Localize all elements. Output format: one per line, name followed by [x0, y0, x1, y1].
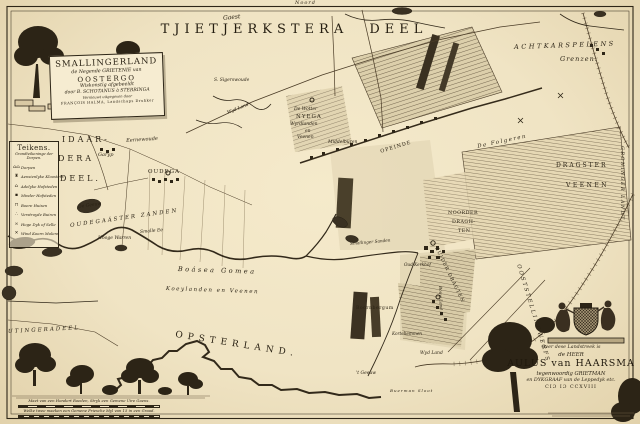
label-boornbergum: Boornbergum	[356, 307, 394, 312]
legend-glyph: ∴	[12, 212, 21, 217]
legend-glyph: ✕	[12, 231, 21, 236]
dedication-date: CIƆ IƆ CCXVIII	[506, 385, 636, 391]
legend-box: Teikens. Grondteikeninge der Dorpen. ⌂⌂D…	[9, 141, 59, 248]
legend-glyph: ≍	[12, 222, 21, 227]
coat-of-arms	[574, 303, 598, 335]
legend-glyph: ▪	[12, 193, 21, 198]
label-dragster: DRAGSTER	[556, 163, 607, 169]
north-label: Noord	[295, 0, 316, 6]
title-cartouche: SMALLINGERLAND de Negende GRIETENIE van …	[49, 52, 165, 120]
label-grenzen: Grenzen.	[560, 56, 598, 63]
label-dera: DERA	[58, 155, 94, 163]
windmill-icon	[518, 118, 523, 123]
label-de-wotter: De Wotter	[294, 108, 317, 113]
pedestal	[548, 338, 624, 343]
trees-bottom-left	[12, 343, 210, 398]
dedication-line5: en DYKGRAAF van de Leppedyk etc.	[506, 378, 636, 384]
legend-label: Hoge Dyk of Selle	[21, 222, 56, 227]
scale-text-1: Maet van een Hondert Roeden, Stryk een G…	[14, 399, 164, 404]
scale-bar-2	[18, 415, 160, 418]
legend-item: ✕Wind Koorn Molens	[12, 229, 56, 239]
label-noorder: NOORDER	[448, 212, 478, 217]
legend-label: Verstroyde Buiren	[21, 212, 56, 217]
legend-label: Minder Hofsteden	[21, 193, 56, 198]
label-kortehemmen: Kortehemmen	[392, 332, 422, 336]
dedication-line2: de HEER	[506, 352, 636, 358]
legend-glyph: ⌂	[12, 184, 21, 189]
legend-label: Wind Koorn Molens	[21, 231, 59, 236]
legend-item: ∴Verstroyde Buiren	[12, 210, 56, 220]
legend-glyph: ⌂⌂	[12, 165, 21, 170]
label-ten: TEN	[458, 230, 470, 235]
legend-item: ▪Minder Hofsteden	[12, 191, 56, 201]
antique-map-smallingerland: Noord TJIETJERKSTERA DEEL Gaest SMALLING…	[0, 0, 640, 424]
label-sigerswoude: S. Sigerswoude	[214, 79, 249, 84]
label-middelburen: Middelburen	[328, 141, 357, 146]
legend-label: Adelyke Hofsteden	[21, 184, 57, 189]
label-idaar: IDAAR-	[62, 136, 110, 144]
legend-label: Dorpen	[21, 165, 35, 170]
legend-glyph: ♜	[12, 174, 21, 179]
legend-label: Aensienlyke Kloosters	[21, 174, 64, 179]
label-oud-kerkhof: Oud Kerkhof	[404, 263, 431, 267]
label-nyega: NYEGA	[296, 115, 322, 121]
label-wyrdlanden: Wyrdlanden	[290, 123, 318, 128]
legend-item: ⌂Adelyke Hofsteden	[12, 182, 56, 192]
map-title: TJIETJERKSTERA DEEL	[158, 22, 430, 37]
dedication-cartouche: Over dese Landstreek is de HEER AULUS va…	[506, 345, 636, 391]
label-groninger-landt: GRONINGER LANDT	[618, 146, 623, 221]
dedication-name: AULUS van HAARSMA	[506, 359, 636, 370]
label-oudega: OUDEGA	[148, 170, 180, 176]
dedication-line1: Over dese Landstreek is	[506, 345, 636, 351]
label-dragh: DRAGH-	[452, 221, 476, 226]
legend-glyph: ⊓	[12, 203, 21, 208]
label-bouw-land: Bouw Land	[438, 286, 443, 310]
label-en: en	[305, 130, 311, 135]
scale-text-2: Welke twee maeken een Gemene Friesche My…	[14, 409, 164, 414]
label-veenen-oost: VEENEN	[566, 183, 609, 189]
legend-title: Teikens.	[12, 144, 56, 152]
legend-subtitle-2: Dorpen.	[12, 156, 56, 160]
legend-items: ⌂⌂Dorpen♜Aensienlyke Kloosters⌂Adelyke H…	[12, 163, 56, 239]
label-veenen-noord: Veenen	[297, 136, 314, 141]
label-hooge-warren: Hooge Warren	[98, 237, 131, 242]
label-deel: DEEL.	[60, 175, 101, 183]
legend-item: ≍Hoge Dyk of Selle	[12, 220, 56, 230]
legend-item: ♜Aensienlyke Kloosters	[12, 172, 56, 182]
legend-label: Boere Huisen	[21, 203, 47, 208]
windmill-icon	[558, 93, 563, 98]
label-garyp: Garyp	[98, 153, 113, 158]
legend-item: ⊓Boere Huisen	[12, 201, 56, 211]
legend-item: ⌂⌂Dorpen	[12, 163, 56, 173]
label-t-geeuw: 't Geeuw	[356, 372, 376, 377]
scale-bars: Maet van een Hondert Roeden, Stryk een G…	[14, 399, 164, 419]
label-wyd-land-zuid: Wyd Land	[420, 352, 443, 357]
label-buerman-sloot: Buerman Sloot	[390, 389, 433, 393]
